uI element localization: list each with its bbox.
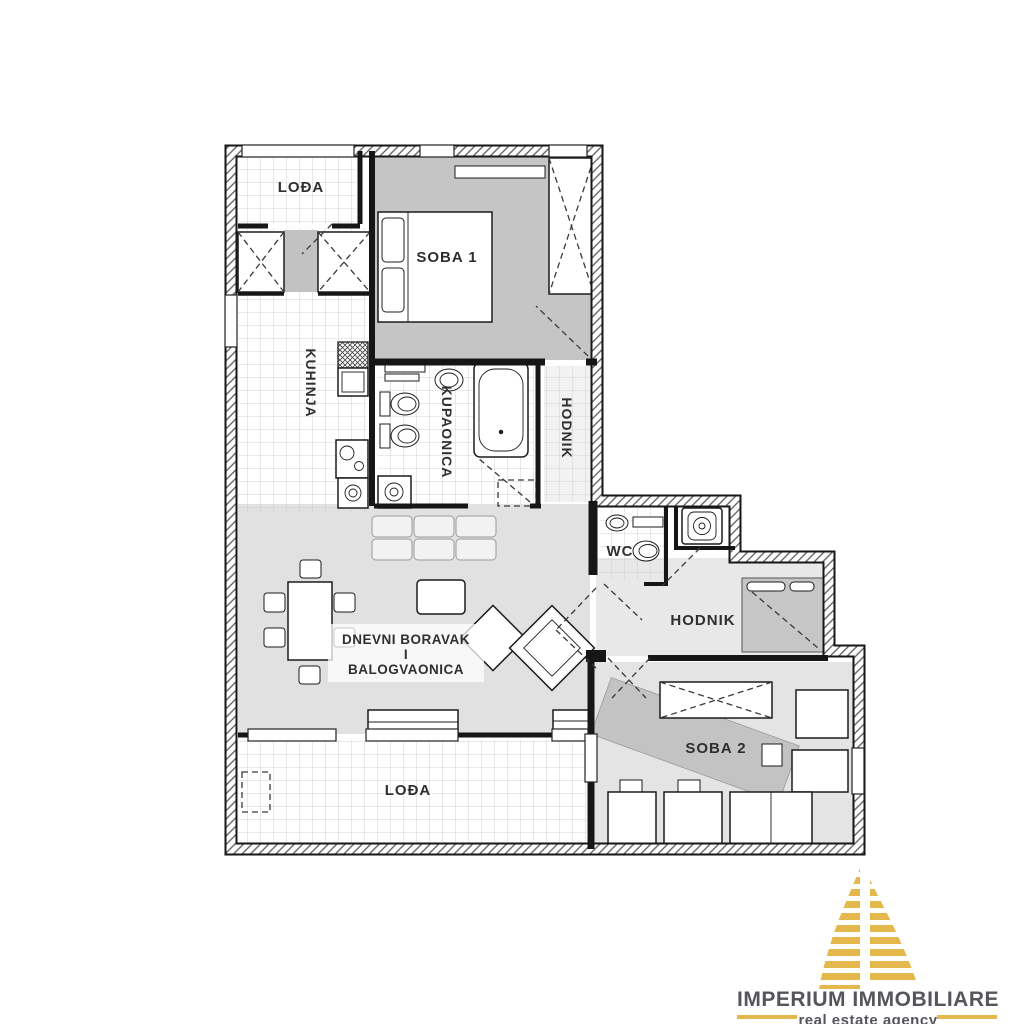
shelf <box>385 374 419 381</box>
chair-icon <box>762 744 782 766</box>
floorplan-drawing: LOĐA SOBA 1 KUHINJA KUPAONICA HODNIK WC … <box>0 0 1024 1024</box>
agency-logo: IMPERIUM IMMOBILIARE real estate agency <box>737 864 999 1024</box>
window-shelf <box>455 166 545 178</box>
bidet-icon <box>380 392 419 416</box>
window <box>225 295 237 347</box>
kitchen-sink-icon <box>338 342 368 368</box>
wardrobe-icon <box>660 682 772 718</box>
room-label-hodnik-upper: HODNIK <box>559 397 575 458</box>
room-label-kupaonica: KUPAONICA <box>439 386 455 479</box>
room-label-hodnik-lower: HODNIK <box>670 612 735 629</box>
hall-lower-closet <box>742 578 826 652</box>
window <box>242 145 354 157</box>
window <box>552 729 588 741</box>
window <box>852 748 864 794</box>
dresser-icon <box>792 750 848 792</box>
room-label-dnevni-2: I <box>404 647 408 662</box>
coffee-table-icon <box>417 580 465 614</box>
entry-door-mat <box>284 230 318 292</box>
window <box>585 734 597 782</box>
room-label-loda-bottom: LOĐA <box>385 782 432 799</box>
room-label-dnevni-1: DNEVNI BORAVAK <box>342 632 470 647</box>
oven-icon <box>338 478 368 508</box>
stove-icon <box>336 440 368 478</box>
logo-building-icon <box>778 864 950 990</box>
toilet-icon <box>633 541 659 561</box>
window <box>420 145 454 157</box>
logo-rule-left <box>737 1015 797 1019</box>
room-label-soba1: SOBA 1 <box>416 249 477 266</box>
wardrobe-icon <box>549 158 594 294</box>
scanned-floorplan-page: LOĐA SOBA 1 KUHINJA KUPAONICA HODNIK WC … <box>0 0 1024 1024</box>
room-label-loda-top: LOĐA <box>278 179 325 196</box>
washing-machine-icon <box>378 476 411 508</box>
logo-subtitle: real estate agency <box>798 1012 937 1024</box>
window <box>549 145 587 157</box>
bathtub-icon <box>474 363 528 457</box>
room-label-soba2: SOBA 2 <box>685 740 746 757</box>
sink-icon <box>606 515 628 531</box>
room-label-dnevni-3: BALOGVAONICA <box>348 662 464 677</box>
logo-rule-right <box>937 1015 997 1019</box>
room-label-kuhinja: KUHINJA <box>303 348 319 417</box>
shelf <box>633 517 663 527</box>
desk-icon <box>796 690 848 738</box>
toilet-icon <box>380 424 419 448</box>
window <box>366 729 458 741</box>
window <box>248 729 336 741</box>
room-label-wc: WC <box>607 543 634 560</box>
shaft-boiler <box>682 508 722 544</box>
logo-title: IMPERIUM IMMOBILIARE <box>737 988 999 1011</box>
bed-icon <box>378 212 492 322</box>
